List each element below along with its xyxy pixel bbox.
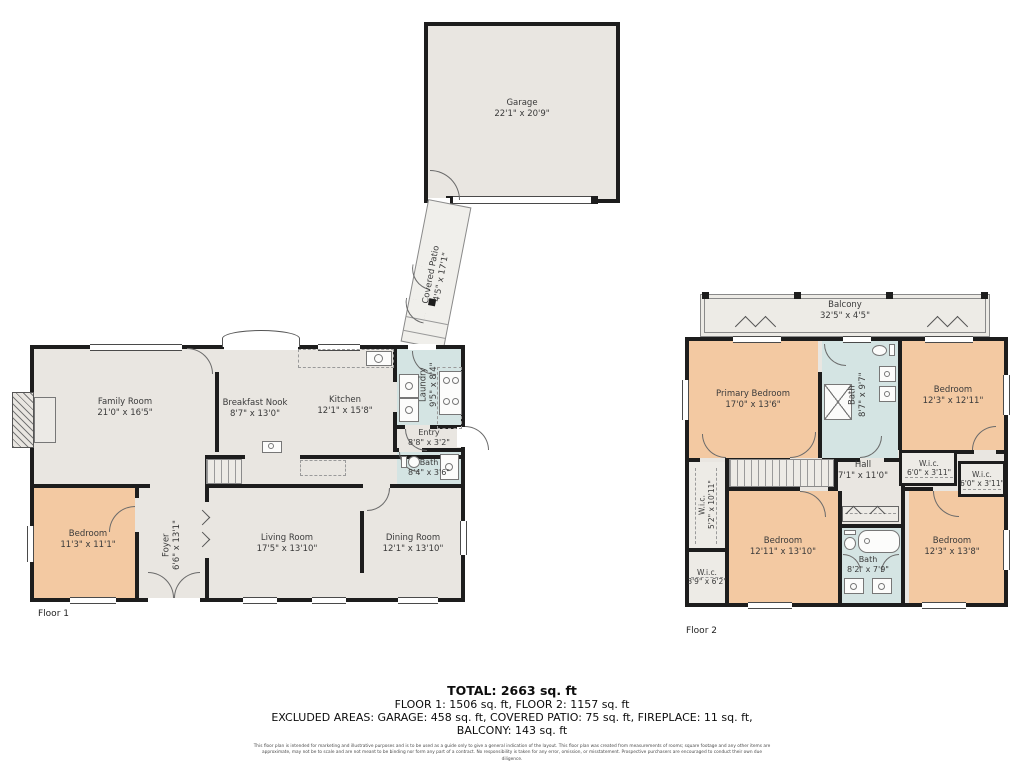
- wall: [689, 458, 700, 462]
- closet-rail: [905, 477, 953, 478]
- wall: [205, 488, 209, 502]
- window: [733, 336, 781, 343]
- balcony-post: [702, 292, 709, 299]
- toilet-bowl: [408, 456, 420, 468]
- wall: [135, 532, 139, 598]
- fireplace-hearth: [34, 397, 56, 443]
- wall: [205, 484, 363, 488]
- sink-basin: [884, 371, 890, 377]
- wall: [905, 487, 933, 491]
- washer-door: [405, 382, 413, 390]
- covered-patio: Covered Patio 4'5" x 17'1": [401, 199, 472, 350]
- stairs: [206, 459, 242, 484]
- balcony-post: [886, 292, 893, 299]
- door-arc: [402, 298, 428, 324]
- window: [70, 597, 116, 604]
- wall: [300, 455, 461, 459]
- closet-rail: [963, 489, 1001, 490]
- room-bedroom1: [34, 488, 135, 598]
- window: [398, 597, 438, 604]
- bay-window-gap: [224, 344, 298, 350]
- toilet-bowl: [844, 537, 856, 550]
- entry-door-gap: [457, 427, 465, 447]
- sink-basin: [268, 443, 274, 449]
- garage-door: [452, 196, 592, 204]
- door-arc: [465, 426, 489, 450]
- window: [27, 526, 34, 562]
- wall: [725, 487, 800, 491]
- summary-excluded2: BALCONY: 143 sq. ft: [0, 724, 1024, 737]
- sink-basin: [850, 583, 857, 590]
- balcony-post: [981, 292, 988, 299]
- wall: [834, 459, 838, 487]
- window: [90, 344, 182, 351]
- disclaimer: This floor plan is intended for marketin…: [252, 744, 772, 763]
- wall: [390, 484, 461, 488]
- toilet-tank: [889, 344, 895, 356]
- wall: [838, 524, 901, 528]
- closet-rail: [716, 468, 717, 544]
- patio-door-gap: [408, 344, 436, 350]
- wall: [689, 548, 725, 552]
- sink-basin: [878, 583, 885, 590]
- floor1-tag: Floor 1: [38, 609, 69, 619]
- stairs: [729, 459, 834, 487]
- floor-plan: Garage 22'1" x 20'9" Covered Patio 4'5" …: [0, 0, 1024, 768]
- room-wic-r1: [899, 450, 957, 486]
- window: [1003, 375, 1010, 415]
- closet-rail: [695, 468, 696, 544]
- summary-total: TOTAL: 2663 sq. ft: [0, 683, 1024, 698]
- patio-step: [404, 330, 445, 339]
- toilet-tank: [844, 530, 856, 535]
- summary-excluded: EXCLUDED AREAS: GARAGE: 458 sq. ft, COVE…: [0, 711, 1024, 724]
- balcony-door: [843, 336, 871, 343]
- sink-basin: [884, 391, 890, 397]
- fireplace: [12, 392, 34, 448]
- window: [312, 597, 346, 604]
- kitchen-island: [300, 460, 346, 476]
- garage-door-post: [591, 196, 598, 204]
- wall: [898, 341, 902, 450]
- window: [925, 336, 973, 343]
- stove: [439, 371, 462, 415]
- stove-burner: [452, 377, 459, 384]
- window: [243, 597, 277, 604]
- toilet-tank: [401, 456, 407, 468]
- wall: [818, 372, 822, 458]
- window: [1003, 530, 1010, 570]
- front-door-gap: [148, 598, 200, 606]
- shower: [824, 384, 852, 420]
- floor2-tag: Floor 2: [686, 626, 717, 636]
- window: [682, 380, 689, 420]
- closet-rail: [691, 577, 723, 578]
- wall: [215, 372, 219, 452]
- wall: [34, 484, 150, 488]
- dryer-door: [405, 406, 413, 414]
- tub-drain: [864, 538, 870, 544]
- patio-post: [428, 298, 436, 306]
- wall: [205, 558, 209, 598]
- window: [748, 602, 792, 609]
- sink-basin: [374, 354, 383, 363]
- stove-burner: [443, 398, 450, 405]
- balcony-post: [794, 292, 801, 299]
- stove-burner: [452, 398, 459, 405]
- garage-outline: [424, 22, 620, 203]
- wall: [422, 448, 461, 452]
- wall: [393, 412, 397, 452]
- wall: [828, 487, 838, 491]
- wall: [360, 511, 364, 573]
- wall: [996, 450, 1004, 454]
- room-wic-r2: [958, 461, 1006, 497]
- wall: [393, 425, 405, 429]
- sink-basin: [445, 463, 453, 471]
- stove-burner: [443, 377, 450, 384]
- door-arc: [408, 264, 434, 290]
- wall: [135, 488, 139, 498]
- window: [460, 521, 467, 555]
- summary-floors: FLOOR 1: 1506 sq. ft, FLOOR 2: 1157 sq. …: [0, 698, 1024, 711]
- toilet-bowl: [872, 345, 887, 356]
- window: [922, 602, 966, 609]
